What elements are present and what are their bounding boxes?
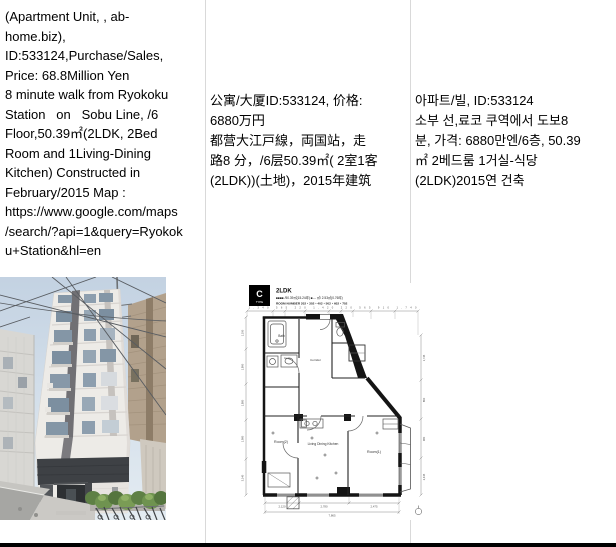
svg-text:1,880: 1,880 [241, 399, 245, 406]
listing-text-korean: 아파트/빌, ID:533124 소부 선,료코 쿠역에서 도보8 분, 가격:… [415, 91, 615, 191]
area-line: ■■■■ /50.39㎡(15.24坪) ■--- ㎡/ 2.53㎡(0.76坪… [276, 295, 343, 300]
corridor-label: Corridor [310, 358, 321, 362]
svg-text:1,980: 1,980 [241, 435, 245, 442]
svg-text:860: 860 [422, 397, 426, 402]
svg-text:1,890: 1,890 [241, 363, 245, 370]
floor-plan: C TYPE 2LDK ■■■■ /50.39㎡(15.24坪) ■--- ㎡/… [237, 283, 428, 520]
type-letter: C [256, 289, 263, 299]
column-divider-1 [205, 0, 206, 543]
svg-text:2,780: 2,780 [321, 505, 328, 509]
bath-label: Bath [278, 334, 285, 338]
svg-text:2,120: 2,120 [279, 505, 286, 509]
ac-unit [45, 407, 51, 412]
ac-unit [47, 383, 53, 388]
listing-table: (Apartment Unit, , ab- home.biz), ID:533… [0, 0, 616, 547]
building-photo [0, 277, 166, 520]
left-neighbor-building [0, 329, 34, 487]
dark-band [37, 457, 129, 485]
svg-text:2,445: 2,445 [422, 473, 426, 480]
listing-text-english: (Apartment Unit, , ab- home.biz), ID:533… [5, 7, 203, 261]
room-number-line: ROOM NUMBER 202・302・402・502・602・702 [276, 302, 348, 306]
table-bottom-border [0, 543, 616, 547]
svg-text:1,745: 1,745 [422, 354, 426, 361]
svg-text:980: 980 [422, 436, 426, 441]
listing-text-chinese: 公寓/大厦ID:533124, 价格: 6880万円 都营大江戸線，両国站，走 … [210, 91, 410, 191]
svg-text:2,475: 2,475 [371, 505, 378, 509]
layout-label: 2LDK [276, 289, 292, 295]
svg-text:1,190: 1,190 [241, 329, 245, 336]
type-sub: TYPE [256, 300, 263, 304]
room1-label: Room(1) [367, 450, 381, 454]
svg-text:3,140: 3,140 [241, 474, 245, 481]
room2-label: Room(2) [274, 440, 288, 444]
total-dim: 7,865 [329, 514, 336, 518]
ldk-label: Living Dining Kitchen [308, 442, 339, 446]
